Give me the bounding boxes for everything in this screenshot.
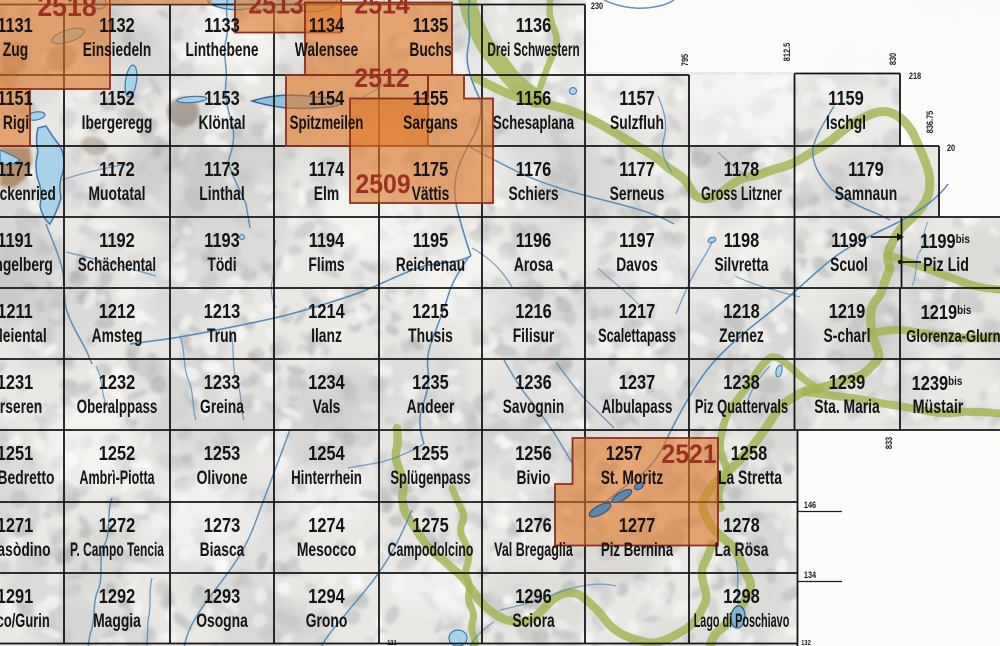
svg-text:1192: 1192 [99, 228, 135, 251]
svg-text:1216: 1216 [515, 299, 551, 322]
svg-text:1278: 1278 [723, 513, 759, 536]
svg-text:Oberalppass: Oberalppass [77, 397, 157, 418]
svg-text:1159: 1159 [828, 86, 864, 109]
svg-text:1152: 1152 [99, 86, 135, 109]
svg-text:Scuol: Scuol [830, 254, 868, 276]
svg-text:1277: 1277 [619, 513, 655, 536]
svg-text:1157: 1157 [619, 86, 655, 109]
svg-text:1179: 1179 [848, 157, 884, 180]
svg-text:Thusis: Thusis [408, 325, 453, 347]
svg-text:Vättis: Vättis [412, 183, 450, 205]
svg-text:Filisur: Filisur [513, 325, 555, 347]
svg-text:Engelberg: Engelberg [0, 254, 53, 276]
svg-text:Piz Bernina: Piz Bernina [601, 540, 674, 561]
svg-text:1156: 1156 [516, 86, 552, 109]
svg-text:2513: 2513 [248, 0, 303, 20]
svg-text:1133: 1133 [204, 13, 240, 36]
svg-text:1237: 1237 [619, 370, 655, 393]
svg-text:Mesocco: Mesocco [297, 539, 356, 561]
svg-text:1236: 1236 [515, 370, 551, 393]
svg-text:836.75: 836.75 [925, 110, 935, 133]
svg-text:2514: 2514 [354, 0, 410, 20]
svg-text:1177: 1177 [619, 157, 655, 180]
svg-text:1254: 1254 [308, 441, 345, 464]
svg-text:1171: 1171 [0, 157, 33, 180]
svg-text:1255: 1255 [412, 441, 448, 464]
svg-text:1173: 1173 [204, 157, 240, 180]
svg-text:Gross Litzner: Gross Litzner [701, 183, 782, 204]
svg-text:Sulzfluh: Sulzfluh [610, 112, 664, 134]
svg-text:1276: 1276 [515, 513, 551, 536]
svg-text:Maggia: Maggia [93, 610, 141, 632]
svg-text:1231: 1231 [0, 370, 33, 393]
svg-text:Serneus: Serneus [610, 183, 665, 205]
svg-text:Scalettapass: Scalettapass [598, 326, 676, 347]
svg-text:Muotatal: Muotatal [89, 183, 146, 205]
svg-text:1197: 1197 [619, 228, 655, 251]
svg-text:Ilanz: Ilanz [311, 325, 342, 347]
svg-text:Biasca: Biasca [200, 539, 245, 561]
svg-text:20: 20 [947, 143, 956, 153]
svg-text:1294: 1294 [308, 584, 345, 607]
svg-text:Albulapass: Albulapass [602, 397, 673, 418]
svg-text:Müstair: Müstair [913, 396, 964, 417]
svg-text:1191: 1191 [0, 228, 33, 251]
svg-text:1258: 1258 [731, 441, 767, 464]
svg-text:Beckenried: Beckenried [0, 183, 56, 205]
svg-text:1195: 1195 [413, 228, 449, 251]
svg-text:1196: 1196 [516, 228, 552, 251]
svg-text:Piz Lid: Piz Lid [923, 254, 969, 275]
svg-text:1232: 1232 [99, 370, 135, 393]
svg-text:1272: 1272 [99, 513, 135, 536]
svg-text:146: 146 [804, 500, 817, 510]
svg-text:1251: 1251 [0, 441, 33, 464]
svg-text:Sciora: Sciora [512, 610, 555, 632]
svg-text:Trun: Trun [207, 325, 237, 347]
svg-text:1153: 1153 [204, 86, 240, 109]
svg-text:Amsteg: Amsteg [92, 325, 143, 347]
svg-text:2521: 2521 [661, 440, 716, 469]
svg-text:P. Campo Tencia: P. Campo Tencia [70, 540, 164, 560]
svg-text:Tödi: Tödi [207, 254, 236, 276]
svg-text:Savognin: Savognin [503, 396, 565, 418]
svg-text:1292: 1292 [99, 584, 135, 607]
svg-text:Spitzmeilen: Spitzmeilen [290, 113, 364, 134]
svg-text:1239: 1239 [829, 370, 865, 393]
svg-text:795: 795 [680, 53, 690, 66]
svg-text:2509: 2509 [355, 170, 410, 199]
svg-text:134: 134 [804, 570, 817, 580]
svg-text:1256: 1256 [515, 441, 551, 464]
svg-text:Piz Quattervals: Piz Quattervals [695, 397, 788, 418]
svg-text:Silvretta: Silvretta [715, 254, 770, 276]
svg-text:1257: 1257 [606, 441, 642, 464]
svg-text:1218: 1218 [723, 299, 759, 322]
svg-text:1211: 1211 [0, 299, 33, 322]
svg-text:Elm: Elm [314, 183, 339, 205]
svg-text:Schächental: Schächental [78, 255, 156, 276]
svg-text:Bivio: Bivio [517, 467, 551, 489]
svg-text:Hinterrhein: Hinterrhein [291, 468, 362, 489]
svg-text:Osogna: Osogna [196, 610, 248, 632]
svg-text:1172: 1172 [99, 157, 135, 180]
svg-text:Buchs: Buchs [409, 39, 451, 61]
svg-text:Zug: Zug [3, 39, 28, 61]
svg-text:1151: 1151 [0, 86, 33, 109]
svg-text:1199: 1199 [831, 228, 867, 251]
svg-text:Grono: Grono [306, 610, 348, 632]
svg-text:1293: 1293 [204, 584, 240, 607]
svg-text:Meiental: Meiental [0, 325, 47, 347]
svg-text:Bosco/Gurin: Bosco/Gurin [0, 611, 50, 632]
svg-text:Val Bregaglia: Val Bregaglia [494, 539, 573, 560]
svg-text:Linthal: Linthal [199, 183, 244, 205]
svg-text:1198: 1198 [724, 228, 760, 251]
svg-text:Andeer: Andeer [407, 396, 455, 418]
svg-text:1235: 1235 [412, 370, 448, 393]
svg-text:121: 121 [387, 640, 397, 646]
svg-text:1273: 1273 [204, 513, 240, 536]
svg-text:Davos: Davos [616, 254, 658, 276]
svg-text:1136: 1136 [516, 13, 552, 36]
svg-text:Arosa: Arosa [514, 254, 554, 276]
svg-text:Urseren: Urseren [0, 396, 42, 418]
svg-text:Linthebene: Linthebene [186, 39, 259, 61]
svg-text:Flims: Flims [308, 254, 344, 276]
svg-text:1193: 1193 [204, 228, 240, 251]
svg-text:Olivone: Olivone [197, 467, 248, 489]
svg-text:Ischgl: Ischgl [826, 112, 866, 134]
svg-text:1233: 1233 [204, 370, 240, 393]
svg-text:Basòdino: Basòdino [0, 539, 51, 561]
svg-text:1217: 1217 [619, 299, 655, 322]
svg-text:1219: 1219 [829, 299, 865, 322]
svg-text:Schiers: Schiers [508, 183, 558, 205]
svg-text:1291: 1291 [0, 584, 33, 607]
svg-text:230: 230 [591, 1, 604, 11]
svg-text:St. Moritz: St. Moritz [601, 467, 663, 489]
svg-text:1271: 1271 [0, 513, 33, 536]
svg-text:S-charl: S-charl [823, 325, 870, 347]
svg-text:Splügenpass: Splügenpass [390, 468, 470, 489]
svg-text:Walensee: Walensee [295, 39, 358, 61]
svg-text:1234: 1234 [308, 370, 345, 393]
svg-text:1274: 1274 [308, 513, 345, 536]
svg-text:Greina: Greina [200, 396, 245, 418]
svg-text:1178: 1178 [724, 157, 760, 180]
svg-text:Reichenau: Reichenau [396, 254, 465, 276]
svg-text:Campodolcino: Campodolcino [388, 539, 474, 560]
svg-text:Vals: Vals [313, 396, 341, 418]
svg-text:1253: 1253 [204, 441, 240, 464]
svg-text:1215: 1215 [412, 299, 448, 322]
svg-text:Rigi: Rigi [3, 112, 29, 134]
svg-text:1214: 1214 [308, 299, 345, 322]
svg-text:1176: 1176 [516, 157, 552, 180]
svg-text:1175: 1175 [413, 157, 449, 180]
svg-text:Samnaun: Samnaun [835, 183, 897, 205]
svg-text:La Stretta: La Stretta [718, 467, 783, 489]
svg-text:812.5: 812.5 [782, 42, 792, 61]
svg-text:Bedretto: Bedretto [0, 467, 55, 489]
svg-text:1134: 1134 [309, 13, 345, 36]
svg-text:1275: 1275 [412, 513, 448, 536]
svg-text:Drei Schwestern: Drei Schwestern [487, 40, 579, 60]
svg-text:1135: 1135 [413, 13, 449, 36]
svg-text:1174: 1174 [309, 157, 345, 180]
svg-text:1194: 1194 [309, 228, 345, 251]
svg-text:1154: 1154 [309, 86, 345, 109]
svg-text:Sta. Maria: Sta. Maria [814, 396, 880, 418]
svg-text:Lago di Poschiavo: Lago di Poschiavo [694, 611, 790, 632]
svg-text:Einsiedeln: Einsiedeln [83, 39, 151, 61]
svg-text:Sargans: Sargans [403, 112, 458, 134]
svg-text:1213: 1213 [204, 299, 240, 322]
svg-text:1296: 1296 [515, 584, 551, 607]
svg-text:La Rösa: La Rösa [715, 539, 770, 561]
svg-text:2512: 2512 [354, 64, 409, 93]
svg-text:Schesaplana: Schesaplana [493, 113, 575, 134]
svg-text:1252: 1252 [99, 441, 135, 464]
svg-text:Klöntal: Klöntal [199, 112, 246, 134]
svg-text:132: 132 [801, 640, 811, 646]
svg-text:830: 830 [888, 52, 898, 65]
svg-text:1131: 1131 [0, 13, 33, 36]
svg-text:1212: 1212 [99, 299, 135, 322]
svg-text:833: 833 [884, 436, 894, 449]
svg-text:Zernez: Zernez [719, 325, 764, 347]
svg-text:Glorenza-Glurns: Glorenza-Glurns [906, 327, 1000, 347]
svg-text:1155: 1155 [413, 86, 449, 109]
svg-text:1238: 1238 [723, 370, 759, 393]
svg-text:Ambrì-Piotta: Ambrì-Piotta [79, 467, 155, 488]
svg-text:1298: 1298 [723, 584, 759, 607]
svg-text:2518: 2518 [37, 0, 96, 22]
svg-text:218: 218 [909, 71, 922, 81]
svg-text:1132: 1132 [99, 13, 135, 36]
svg-text:Ibergeregg: Ibergeregg [82, 112, 153, 134]
